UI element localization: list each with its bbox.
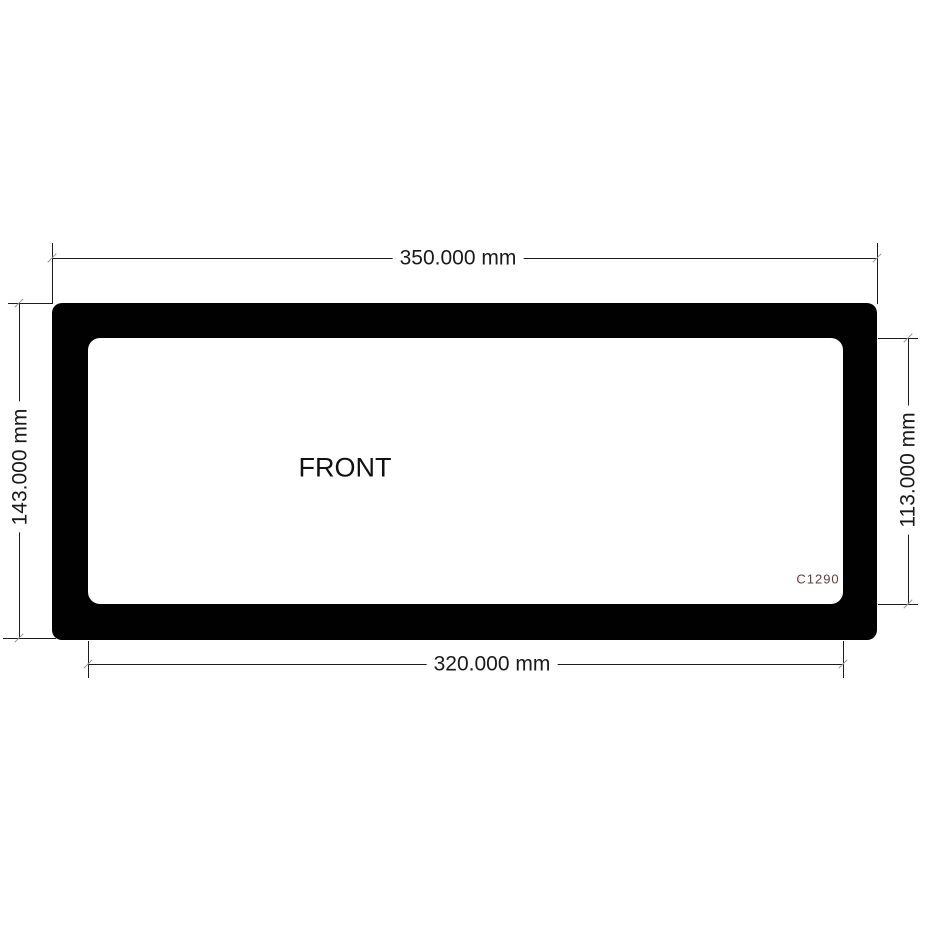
ext-line-outer-width-right	[877, 243, 878, 304]
ext-line-outer-height-top	[8, 303, 53, 304]
part-frame	[52, 303, 877, 640]
ext-line-outer-width-left	[52, 243, 53, 304]
ext-line-inner-width-left	[88, 641, 89, 678]
part-code-label: C1290	[796, 572, 839, 587]
drawing-canvas: 350.000 mm 143.000 mm 113.000 mm 320.000…	[0, 0, 928, 928]
dim-label-outer-width: 350.000 mm	[393, 245, 524, 270]
dim-label-inner-height: 113.000 mm	[895, 405, 920, 534]
part-frame-opening	[88, 338, 843, 604]
ext-line-inner-height-bottom	[878, 604, 918, 605]
ext-line-inner-width-right	[843, 641, 844, 678]
dim-label-outer-height: 143.000 mm	[7, 402, 32, 533]
dim-label-inner-width: 320.000 mm	[427, 651, 558, 676]
part-orientation-label: FRONT	[299, 453, 392, 484]
ext-line-inner-height-top	[878, 338, 918, 339]
ext-line-outer-height-bottom	[3, 638, 56, 639]
